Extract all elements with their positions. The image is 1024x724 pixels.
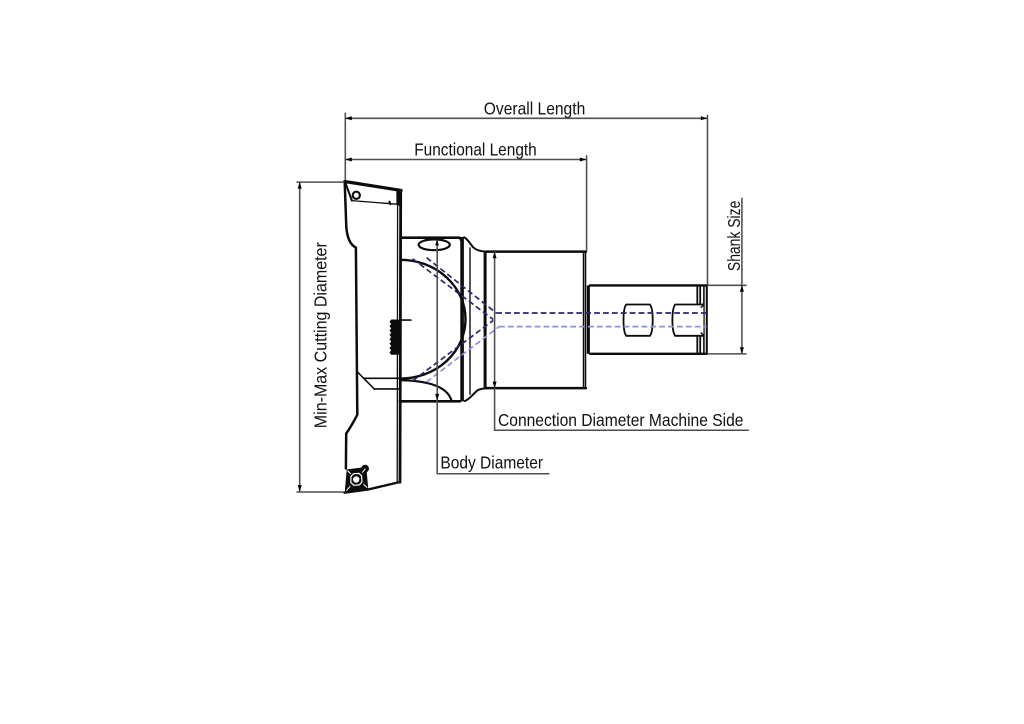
svg-text:Overall Length: Overall Length [484,98,586,118]
svg-text:Shank Size: Shank Size [724,201,744,271]
svg-text:Connection Diameter Machine Si: Connection Diameter Machine Side [498,410,744,430]
svg-text:Functional Length: Functional Length [414,140,537,160]
svg-text:Body Diameter: Body Diameter [440,453,543,473]
svg-text:Min-Max Cutting Diameter: Min-Max Cutting Diameter [311,242,331,428]
